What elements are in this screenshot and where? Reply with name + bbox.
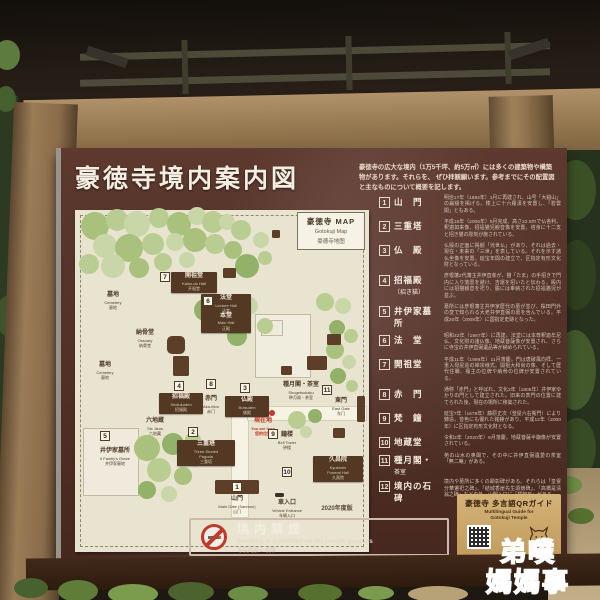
map-tree (166, 233, 184, 251)
map-label-line: 佛殿 (226, 410, 268, 415)
map-label-line: Shugetsukaku (283, 390, 319, 395)
no-smoking-jp: 境内禁煙 (237, 520, 373, 537)
map-tree (346, 380, 358, 392)
legend-description: 通称「赤門」と呼ばれ、文化2年（1805年）井伊家ゆかりの門として建立された。旧… (444, 388, 561, 407)
map-number-marker: 9 (268, 429, 278, 439)
map-label-line: 墓地 (96, 362, 113, 370)
map-tree (342, 355, 356, 369)
map-label-line: Ossuary (136, 338, 154, 343)
map-label-line: 钟楼 (278, 445, 296, 450)
legend-name-main: 梵 鐘 (394, 412, 440, 424)
map-number-marker: 7 (160, 272, 170, 282)
legend-description: 仏殿の正面に掲額「弐世仏」があり、それは過去・現在・未来の「三世」を表している。… (444, 244, 561, 270)
sign-intro-text: 豪徳寺の広大な境内（1万5千坪、約5万㎡）には多くの建築物や構築物があります。そ… (359, 163, 555, 192)
map-tree (79, 254, 99, 274)
legend-description: 平成11年（1999年）11月落慶。門は唐破風向拝、一重入母屋造の禅宗様式。開祖… (444, 358, 561, 384)
you-are-here-dot (269, 410, 275, 416)
roof-brace (345, 36, 352, 90)
map-tree (138, 481, 156, 499)
map-building (167, 336, 185, 354)
legend-name: 井伊家墓所 (394, 305, 440, 329)
car-icon (275, 493, 284, 497)
legend-name: 山 門 (394, 196, 440, 208)
map-label-line: 車入口 (272, 500, 302, 508)
legend-number-badge: 11 (379, 455, 390, 466)
map-label-line: Cemetery (104, 300, 121, 305)
map-label-line: 招福殿 (160, 394, 202, 402)
map-label-line: 墓地 (96, 375, 113, 380)
legend-number-badge: 3 (379, 245, 390, 256)
map-tree (147, 458, 171, 482)
map-label: 招福殿Shofukuden招福殿 (159, 393, 203, 414)
map-tree (183, 228, 207, 252)
roof-brace (181, 40, 188, 94)
legend-name-main: 井伊家墓所 (394, 305, 440, 329)
map-building (357, 396, 365, 422)
map-label-line: 墓地 (104, 305, 121, 310)
map-tree (134, 435, 160, 461)
map-number-marker: 8 (206, 379, 216, 389)
map-label-line: 种月阁・茶室 (283, 395, 319, 400)
map-number-marker: 4 (174, 381, 184, 391)
legend-name-main: 法 堂 (394, 334, 440, 346)
legend-description: 延宝7年（1679年）藤原正次（釜屋六右衛門）により鋳造。音色にも優れた銘鐘があ… (444, 412, 561, 431)
map-label-line: Cemetery (96, 370, 113, 375)
map-label-line: Main Gate (Sanmon) (218, 504, 255, 509)
map-label-line: Ii Family's Grave (100, 456, 130, 461)
legend-list: 1山 門明治17年（1884年）1月に再建され、山号「大谿山」の扁額を掲げる。楼… (379, 196, 561, 504)
map-label-line: 墓地 (104, 292, 121, 300)
qr-code (467, 525, 491, 549)
map-label: 開祖堂Kaiso-do Hall开祖堂 (171, 272, 217, 293)
map-label-line: Six Jizos (146, 426, 164, 431)
map-building (307, 356, 327, 370)
map-label-line: East Gate (332, 406, 350, 411)
map-label-line: 东门 (332, 411, 350, 416)
legend-number-badge: 7 (379, 359, 390, 370)
map-label-line: 現在地 (251, 418, 275, 426)
map-label-line: 招福殿 (160, 407, 202, 412)
grounds-map-panel: 豪徳寺 MAP Gotokuji Map 豪德寺地图 ↑ 開祖堂Kaiso-do… (75, 210, 369, 552)
legend-name: 赤 門 (394, 388, 440, 400)
map-label-line: 山門 (218, 496, 255, 504)
legend-item: 2三重塔平成18年（2006年）5月完成、高さ22.5ｍで仏舎利、釈迦如来像、招… (379, 220, 561, 239)
legend-name: 開祖堂 (394, 358, 440, 370)
legend-item: 6法 堂昭和42年（1967年）に再建。法堂には本尊釈迦牟尼仏、文化財の諸仏像、… (379, 334, 561, 353)
legend-description: 平成18年（2006年）5月完成、高さ22.5ｍで仏舎利、釈迦如来像、招福猫児観… (444, 220, 561, 239)
map-tree (335, 298, 351, 314)
map-label-line: 井伊家墓所 (100, 448, 130, 456)
sign-title: 豪徳寺境内案内図 (75, 159, 299, 195)
map-label-line: Vehicle Entrance (272, 508, 302, 513)
map-building (333, 428, 345, 438)
map-label-line: 久昌院 (314, 475, 362, 480)
map-tree (257, 318, 273, 334)
legend-name: 地蔵堂 (394, 436, 440, 448)
legend-name: 招福殿〔招き猫〕 (394, 274, 440, 296)
map-label-line: 2020年度版 (321, 506, 352, 514)
map-tree (174, 467, 192, 485)
legend-description: 墓所には彦根藩主井伊家歴代の墓が並び、桜田門外の変で知られる大老井伊直弼の墓を含… (444, 305, 561, 324)
map-label: 東門East Gate东门 (332, 398, 350, 416)
map-label: 久昌院KyushoinFuneral Hall久昌院 (313, 456, 363, 482)
map-tree (149, 208, 169, 228)
map-label: 山門Main Gate (Sanmon)山门 (218, 496, 255, 514)
legend-number-badge: 6 (379, 335, 390, 346)
map-content: 豪徳寺 MAP Gotokuji Map 豪德寺地图 ↑ 開祖堂Kaiso-do… (75, 210, 369, 552)
map-number-marker: 1 (232, 482, 242, 492)
legend-name: 仏 殿 (394, 244, 440, 256)
map-label-line: 開祖堂 (172, 273, 216, 281)
map-corner-label: 豪徳寺 MAP Gotokuji Map 豪德寺地图 (297, 212, 365, 250)
map-label: 墓地Cemetery墓地 (96, 362, 113, 380)
map-tree (330, 368, 346, 384)
map-label-line: 仏殿 (226, 397, 268, 405)
map-number-marker: 11 (322, 385, 332, 395)
legend-number-badge: 4 (379, 275, 390, 286)
map-label-line: 正殿 (202, 326, 250, 331)
legend-item: 5井伊家墓所墓所には彦根藩主井伊家歴代の墓が並び、桜田門外の変で知られる大老井伊… (379, 305, 561, 329)
map-label-line: 赤门 (203, 409, 219, 414)
map-label-line: 赤門 (203, 396, 219, 404)
map-label-line: 東門 (332, 398, 350, 406)
no-smoking-en: Smoking is prohibited on the temple grou… (237, 538, 373, 545)
map-label-line: 六地蔵 (146, 418, 164, 426)
legend-name-main: 三重塔 (394, 220, 440, 232)
legend-number-badge: 8 (379, 389, 390, 400)
map-label: 車入口Vehicle Entrance车辆入口 (272, 500, 302, 518)
map-label-line: 山门 (218, 509, 255, 514)
legend-number-badge: 5 (379, 306, 390, 317)
map-building (281, 366, 292, 375)
legend-name: 境内の石碑 (394, 480, 440, 504)
no-smoking-icon (201, 524, 227, 550)
map-label-line: 本堂 (202, 313, 250, 321)
map-tree (205, 234, 225, 254)
watermark-line2: 媽媽事 (486, 562, 570, 599)
legend-name-sub: 〔招き猫〕 (394, 287, 440, 296)
map-label: 鐘楼Bell Tower钟楼 (278, 432, 296, 450)
map-building (173, 356, 189, 376)
map-corner-en: Gotokuji Map (298, 229, 364, 235)
map-label: 仏殿Butsuden佛殿 (225, 396, 269, 417)
map-label-line: 井伊家墓地 (100, 461, 130, 466)
map-label: 種月閣・茶室Shugetsukaku种月阁・茶室 (283, 382, 319, 400)
qr-guide-en2: Gotokuji Temple (490, 516, 527, 521)
map-label-line: 納骨堂 (136, 330, 154, 338)
map-label-line: 久昌院 (314, 457, 362, 465)
legend-description: 苑の山水の奥閣で、その中に井伊直弼遺愛の茶室「無二庵」がある。 (444, 454, 561, 467)
map-tree (308, 409, 322, 423)
qr-guide-title: 豪徳寺 多言語QRガイド (461, 498, 557, 509)
map-label-line: Aka-Mon (203, 404, 219, 409)
legend-item: 4招福殿〔招き猫〕彦根藩2代藩主井伊直孝が、猫「たま」の手招きで門内に入り落雷を… (379, 274, 561, 300)
legend-name-main: 仏 殿 (394, 244, 440, 256)
map-tree (179, 252, 195, 268)
legend-name-main: 種月閣・ (394, 454, 440, 466)
legend-description: 明治17年（1884年）1月に再建され、山号「大谿山」の扁額を掲げる。楼上に十六… (444, 196, 561, 215)
legend-item: 1山 門明治17年（1884年）1月に再建され、山号「大谿山」の扁額を掲げる。楼… (379, 196, 561, 215)
map-building (272, 230, 280, 238)
legend-item: 7開祖堂平成11年（1999年）11月落慶。門は唐破風向拝、一重入母屋造の禅宗様… (379, 358, 561, 384)
qr-guide-subtitle: Multilingual Guide for Gotokuji Temple (461, 510, 557, 522)
map-tree (316, 293, 334, 311)
legend-name: 種月閣・茶室 (394, 454, 440, 476)
map-tree (253, 232, 269, 248)
legend-item: 10地蔵堂令和2年（2020年）9月落慶。地蔵菩薩半跏像が安置されている。 (379, 436, 561, 449)
legend-name-main: 山 門 (394, 196, 440, 208)
legend-name-main: 赤 門 (394, 388, 440, 400)
map-building (223, 268, 236, 278)
qr-guide-en1: Multilingual Guide for (484, 510, 533, 515)
legend-item: 9梵 鐘延宝7年（1679年）藤原正次（釜屋六右衛門）により鋳造。音色にも優れた… (379, 412, 561, 431)
map-label-line: 鐘楼 (278, 432, 296, 440)
map-label-line: Bell Tower (278, 440, 296, 445)
map-tree (101, 254, 125, 278)
map-label: 三重塔Three-StoriedPagoda三重塔 (177, 440, 235, 466)
map-label-line: 六地藏 (146, 431, 164, 436)
legend-name-sub: 茶室 (394, 467, 440, 476)
map-number-marker: 3 (240, 383, 250, 393)
map-label: 六地蔵Six Jizos六地藏 (146, 418, 164, 436)
map-label: 井伊家墓所Ii Family's Grave井伊家墓地 (100, 448, 130, 466)
map-tree (300, 426, 312, 438)
legend-number-badge: 12 (379, 481, 390, 492)
no-smoking-notice: 境内禁煙 Smoking is prohibited on the temple… (189, 518, 449, 556)
map-label-line: 纳骨堂 (136, 343, 154, 348)
map-label-line: 三重塔 (178, 459, 234, 464)
legend-description: 令和2年（2020年）9月落慶。地蔵菩薩半跏像が安置されている。 (444, 436, 561, 449)
map-number-marker: 5 (100, 431, 110, 441)
legend-name: 三重塔 (394, 220, 440, 232)
legend-item: 8赤 門通称「赤門」と呼ばれ、文化2年（1805年）井伊家ゆかりの門として建立さ… (379, 388, 561, 407)
map-corner-zh: 豪德寺地图 (298, 237, 364, 245)
map-tree (129, 258, 149, 278)
legend-name: 法 堂 (394, 334, 440, 346)
map-label: 2020年度版 (321, 506, 352, 514)
map-corner-jp: 豪徳寺 MAP (298, 216, 364, 227)
map-tree (142, 233, 164, 255)
map-tree (235, 254, 259, 278)
legend-description: 彦根藩2代藩主井伊直孝が、猫「たま」の手招きで門内に入り落雷を避け、吉運を招いた… (444, 274, 561, 300)
map-tree (258, 251, 272, 265)
legend-number-badge: 2 (379, 221, 390, 232)
no-smoking-zh: 寺院内禁止吸烟 (237, 546, 373, 554)
legend-number-badge: 10 (379, 437, 390, 448)
map-label: 納骨堂Ossuary纳骨堂 (136, 330, 154, 348)
legend-name-main: 地蔵堂 (394, 436, 440, 448)
map-label: 墓地Cemetery墓地 (104, 292, 121, 310)
map-number-marker: 2 (188, 427, 198, 437)
legend-number-badge: 1 (379, 197, 390, 208)
legend-description: 昭和42年（1967年）に再建。法堂には本尊釈迦牟尼仏、文化財の諸仏像、地蔵菩薩… (444, 334, 561, 353)
photo-of-temple-sign: 豪徳寺境内案内図 豪徳寺の広大な境内（1万5千坪、約5万㎡）には多くの建築物や構… (0, 0, 600, 600)
legend-name-main: 招福殿 (394, 274, 440, 286)
legend-name-main: 境内の石碑 (394, 480, 440, 504)
map-number-marker: 6 (203, 296, 213, 306)
map-tree (344, 329, 358, 343)
map-label-line: 種月閣・茶室 (283, 382, 319, 390)
map-label-line: 开祖堂 (172, 286, 216, 291)
map-tree (231, 220, 251, 240)
legend-name: 梵 鐘 (394, 412, 440, 424)
map-building (327, 334, 341, 345)
map-tree (154, 253, 172, 271)
legend-item: 3仏 殿仏殿の正面に掲額「弐世仏」があり、それは過去・現在・未来の「三世」を表し… (379, 244, 561, 270)
legend-number-badge: 9 (379, 413, 390, 424)
map-label-line: 三重塔 (178, 441, 234, 449)
map-tree (161, 486, 177, 502)
map-number-marker: 10 (282, 467, 292, 477)
legend-name-main: 開祖堂 (394, 358, 440, 370)
legend-item: 11種月閣・茶室苑の山水の奥閣で、その中に井伊直弼遺愛の茶室「無二庵」がある。 (379, 454, 561, 476)
map-label: 赤門Aka-Mon赤门 (203, 396, 219, 414)
temple-information-sign: 豪徳寺境内案内図 豪徳寺の広大な境内（1万5千坪、約5万㎡）には多くの建築物や構… (56, 148, 567, 567)
